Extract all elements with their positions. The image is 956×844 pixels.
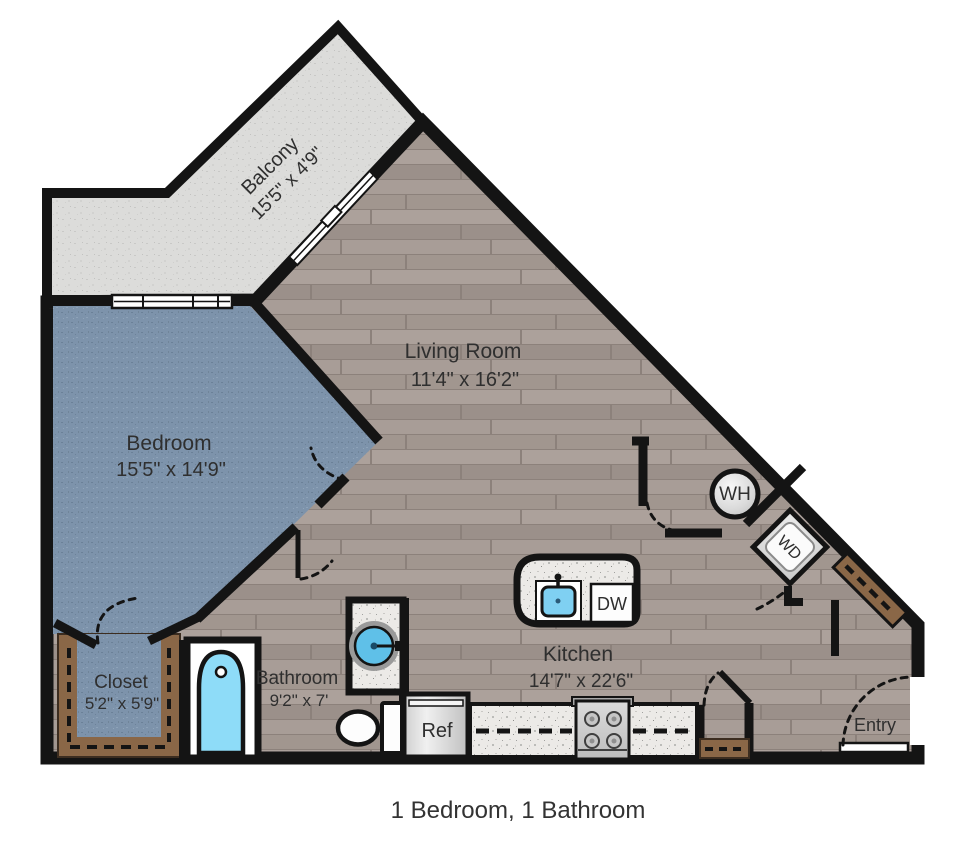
- bathroom-name: Bathroom: [256, 668, 338, 689]
- sink-drain-icon: [371, 643, 378, 650]
- living-room-name: Living Room: [405, 340, 522, 363]
- stove: [572, 697, 633, 759]
- tub-drain-icon: [216, 667, 226, 677]
- bedroom-dims: 15'5" x 14'9": [116, 459, 226, 481]
- entry-door-leaf: [840, 743, 908, 752]
- kitchen-faucet-knob: [555, 574, 562, 581]
- kitchen-sink-drain: [556, 599, 561, 604]
- bedroom-name: Bedroom: [126, 432, 211, 455]
- kitchen-name: Kitchen: [543, 643, 613, 666]
- living-room-dims: 11'4" x 16'2": [411, 369, 519, 391]
- dishwasher-label: DW: [597, 594, 627, 614]
- water-heater-label: WH: [719, 484, 751, 505]
- kitchen-dims: 14'7" x 22'6": [529, 671, 633, 692]
- floor-plan: Balcony 15'5" x 4'9" Living Room 11'4" x…: [0, 0, 956, 844]
- refrigerator-label: Ref: [421, 720, 453, 742]
- entry-door-opening: [910, 677, 926, 745]
- floor-plan-svg: Balcony 15'5" x 4'9" Living Room 11'4" x…: [0, 0, 956, 844]
- plan-caption: 1 Bedroom, 1 Bathroom: [391, 797, 646, 824]
- entry-label: Entry: [854, 715, 896, 735]
- bathroom-dims: 9'2" x 7': [270, 691, 329, 710]
- bedroom-window: [112, 295, 232, 308]
- closet-dims: 5'2" x 5'9": [85, 694, 159, 713]
- sink-faucet-base: [395, 641, 403, 651]
- closet-name: Closet: [94, 672, 149, 693]
